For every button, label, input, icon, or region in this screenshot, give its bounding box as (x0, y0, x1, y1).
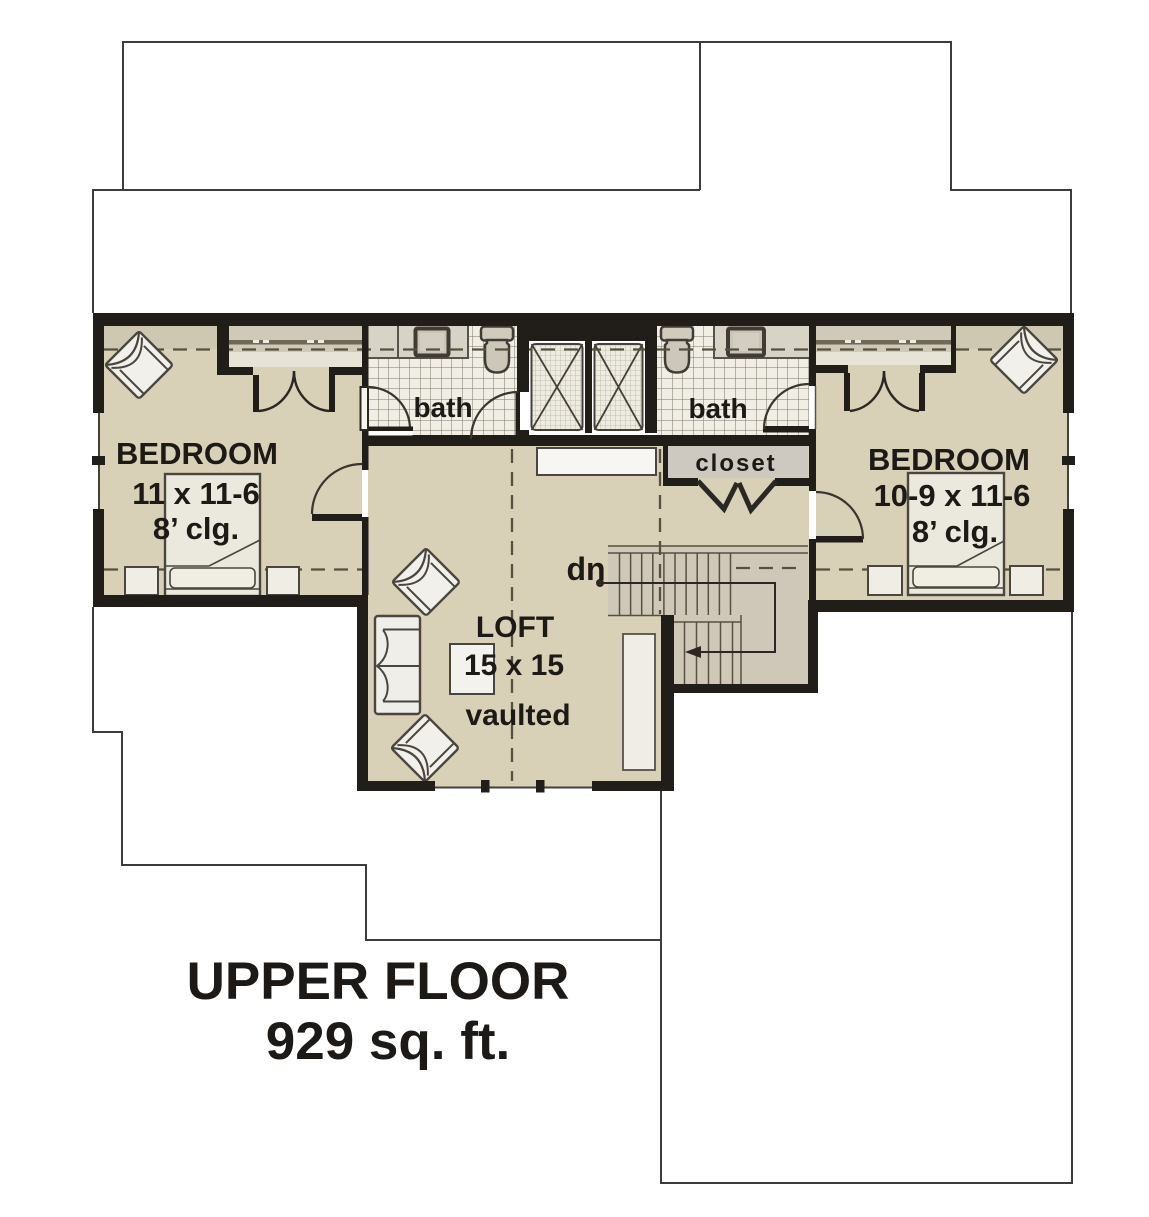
svg-text:bath: bath (413, 392, 472, 423)
svg-text:8’ clg.: 8’ clg. (153, 511, 239, 546)
svg-text:closet: closet (695, 450, 776, 477)
svg-text:vaulted: vaulted (465, 699, 570, 732)
svg-text:UPPER FLOOR: UPPER FLOOR (187, 952, 570, 1011)
svg-text:11 x 11-6: 11 x 11-6 (132, 476, 260, 511)
svg-text:BEDROOM: BEDROOM (868, 442, 1030, 477)
svg-text:bath: bath (688, 393, 747, 424)
svg-text:BEDROOM: BEDROOM (116, 436, 278, 471)
svg-text:15 x 15: 15 x 15 (464, 649, 564, 682)
svg-text:dn: dn (566, 551, 605, 587)
svg-text:929 sq. ft.: 929 sq. ft. (266, 1012, 510, 1071)
svg-text:8’ clg.: 8’ clg. (912, 514, 998, 549)
svg-text:10-9 x 11-6: 10-9 x 11-6 (874, 478, 1031, 513)
svg-text:LOFT: LOFT (476, 611, 554, 644)
